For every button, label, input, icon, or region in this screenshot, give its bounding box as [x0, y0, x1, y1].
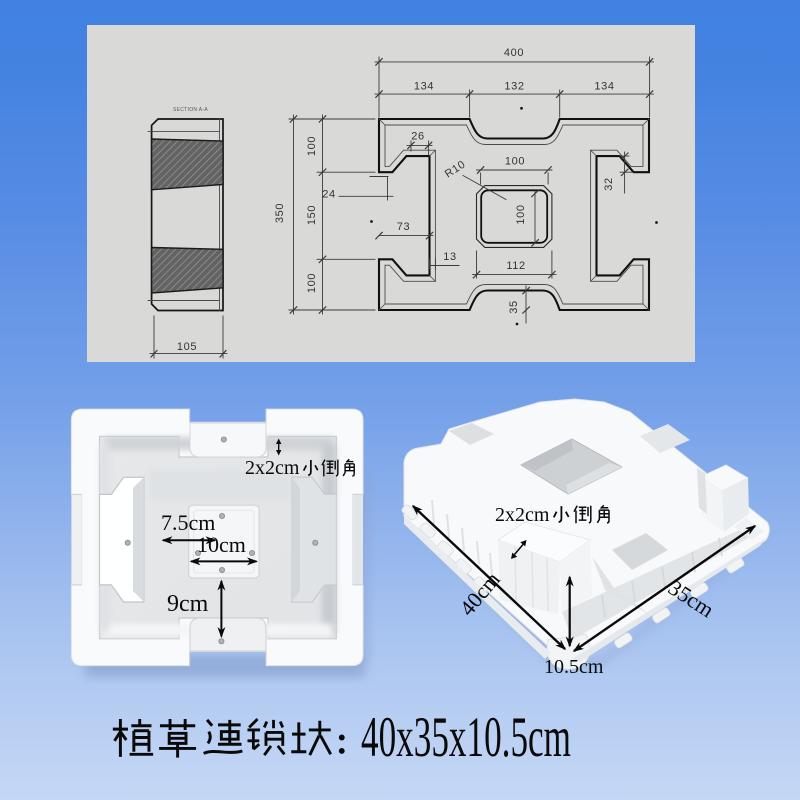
svg-text:132: 132: [504, 81, 524, 93]
svg-text:10.5cm: 10.5cm: [544, 656, 604, 678]
svg-text:350: 350: [274, 203, 286, 223]
svg-text:2x2cm: 2x2cm: [245, 457, 300, 479]
svg-text:150: 150: [306, 205, 318, 225]
svg-text:9cm: 9cm: [167, 591, 209, 617]
svg-text:400: 400: [504, 47, 524, 59]
svg-text:24: 24: [322, 189, 335, 201]
svg-text:SECTION A-A: SECTION A-A: [173, 107, 208, 113]
svg-text:134: 134: [414, 81, 434, 93]
svg-text:2x2cm: 2x2cm: [495, 504, 550, 526]
svg-text:73: 73: [397, 221, 410, 233]
svg-text:32: 32: [603, 177, 615, 190]
svg-text:40x35x10.5cm: 40x35x10.5cm: [361, 706, 571, 769]
svg-text:13: 13: [443, 251, 456, 263]
svg-text:100: 100: [515, 204, 527, 224]
svg-text:26: 26: [411, 131, 424, 143]
svg-text:105: 105: [177, 341, 197, 353]
svg-text:112: 112: [506, 260, 525, 272]
svg-text:100: 100: [306, 273, 318, 293]
svg-text:10cm: 10cm: [197, 532, 246, 557]
svg-text:100: 100: [306, 136, 318, 156]
svg-text:100: 100: [505, 156, 525, 168]
svg-text:35: 35: [508, 300, 520, 313]
svg-text:134: 134: [594, 81, 614, 93]
